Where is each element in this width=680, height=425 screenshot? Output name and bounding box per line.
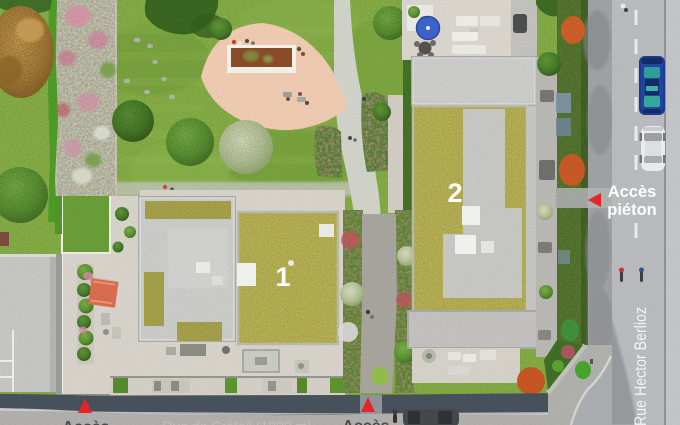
svg-text:2: 2	[447, 178, 462, 208]
svg-text:1: 1	[275, 262, 290, 292]
svg-text:Rue Hector Berlioz: Rue Hector Berlioz	[632, 307, 650, 425]
svg-text:Rue de Créteil (1800 m): Rue de Créteil (1800 m)	[162, 418, 311, 425]
svg-text:Accès: Accès	[608, 183, 657, 201]
svg-text:piéton: piéton	[607, 201, 657, 219]
svg-text:Accès: Accès	[342, 418, 389, 425]
svg-text:Accès: Accès	[62, 419, 109, 425]
